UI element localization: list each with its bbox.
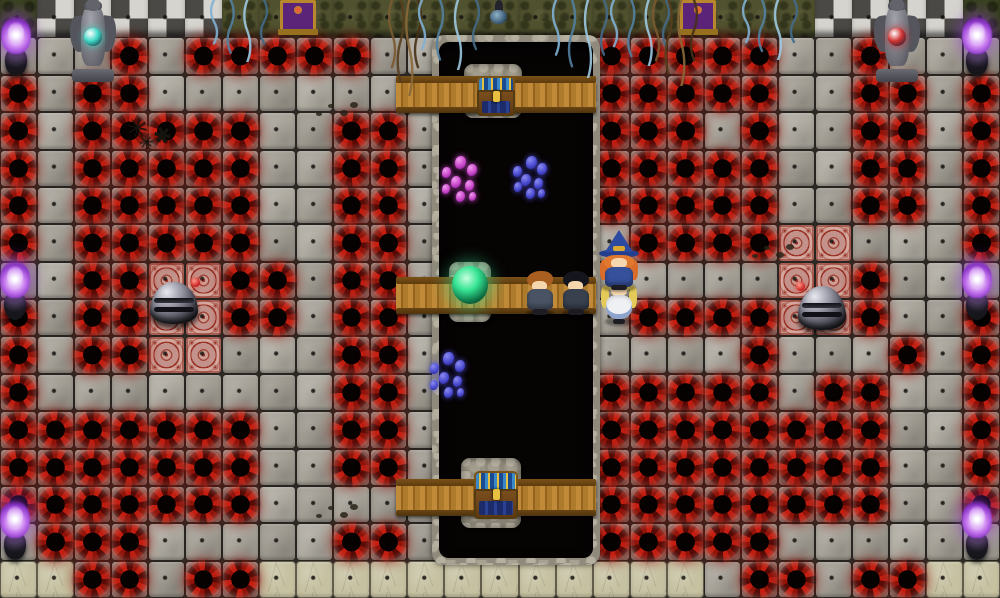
gargoyle-statue-left bbox=[70, 0, 116, 82]
hanging-roots bbox=[388, 0, 422, 96]
character-feet bbox=[611, 285, 627, 290]
purple-torch-mid-right bbox=[962, 260, 992, 324]
brown-vine-icon bbox=[652, 0, 698, 86]
spike-caltrops: ✳✱✳ bbox=[124, 112, 200, 160]
statue-head bbox=[86, 0, 100, 11]
purple-torch-mid-left bbox=[0, 260, 30, 324]
party-member-rogue[interactable] bbox=[559, 270, 593, 318]
purple-flame-icon bbox=[962, 500, 992, 538]
bottom-chest[interactable] bbox=[474, 471, 518, 519]
character-feet bbox=[613, 319, 625, 324]
wall-lamp-center bbox=[487, 0, 511, 30]
pit-tentacle-blue2 bbox=[424, 348, 470, 404]
blue-vine-icon bbox=[552, 0, 608, 78]
pit-tentacle-pink bbox=[436, 152, 482, 208]
sprite-overlays: ✳✱✳ bbox=[0, 0, 1000, 598]
statue-orb-icon bbox=[84, 28, 102, 46]
purple-torch-top-left bbox=[1, 16, 31, 80]
dome-red-orb-icon bbox=[191, 278, 200, 287]
chest-panel bbox=[482, 101, 511, 113]
character-body bbox=[606, 295, 632, 319]
blue-vine-icon bbox=[210, 0, 268, 62]
game-viewport: ✳✱✳ bbox=[0, 0, 1000, 598]
green-crystal-orb bbox=[452, 266, 488, 304]
chest-clasp-icon bbox=[493, 489, 500, 500]
statue-base bbox=[72, 69, 114, 82]
character-feet bbox=[568, 309, 584, 315]
top-chest[interactable] bbox=[477, 76, 515, 116]
chest-clasp-icon bbox=[493, 91, 500, 102]
party-member-wizard[interactable] bbox=[598, 230, 640, 292]
purple-flame-icon bbox=[1, 16, 31, 54]
statue-base bbox=[876, 69, 918, 82]
metal-dome-trap-right bbox=[798, 286, 846, 330]
brown-vine-icon bbox=[388, 0, 422, 96]
character-body bbox=[605, 267, 633, 287]
character-feet bbox=[532, 309, 548, 315]
wizard-hat-band-icon bbox=[613, 246, 625, 251]
party-member-soldier[interactable] bbox=[523, 270, 557, 318]
purple-flame-icon bbox=[962, 260, 992, 298]
footprint-trail bbox=[750, 240, 796, 268]
wall-altar-left bbox=[280, 0, 316, 32]
chest-panel bbox=[479, 501, 512, 515]
purple-torch-top-right bbox=[962, 16, 992, 80]
blue-vine-icon bbox=[418, 0, 480, 70]
footprint-trail bbox=[314, 98, 360, 124]
hanging-vines bbox=[418, 0, 480, 70]
statue-orb-icon bbox=[888, 28, 906, 46]
character-body bbox=[563, 289, 589, 310]
metal-dome-trap-left bbox=[150, 282, 198, 324]
purple-torch-bottom-right bbox=[962, 500, 992, 564]
hanging-vines bbox=[552, 0, 608, 78]
hanging-vines bbox=[742, 0, 798, 60]
purple-flame-icon bbox=[0, 500, 30, 538]
dome-red-orb-icon bbox=[796, 282, 805, 291]
lamp-vessel bbox=[490, 10, 507, 24]
hanging-roots bbox=[652, 0, 698, 86]
blue-vine-icon bbox=[742, 0, 798, 60]
footprint-trail bbox=[314, 500, 360, 526]
statue-head bbox=[890, 0, 904, 11]
gargoyle-statue-right bbox=[874, 0, 920, 82]
purple-torch-bottom-left bbox=[0, 500, 30, 564]
purple-flame-icon bbox=[0, 260, 30, 298]
purple-flame-icon bbox=[962, 16, 992, 54]
pit-tentacle-blue bbox=[508, 152, 550, 204]
hanging-vines bbox=[210, 0, 268, 62]
character-body bbox=[527, 289, 553, 310]
